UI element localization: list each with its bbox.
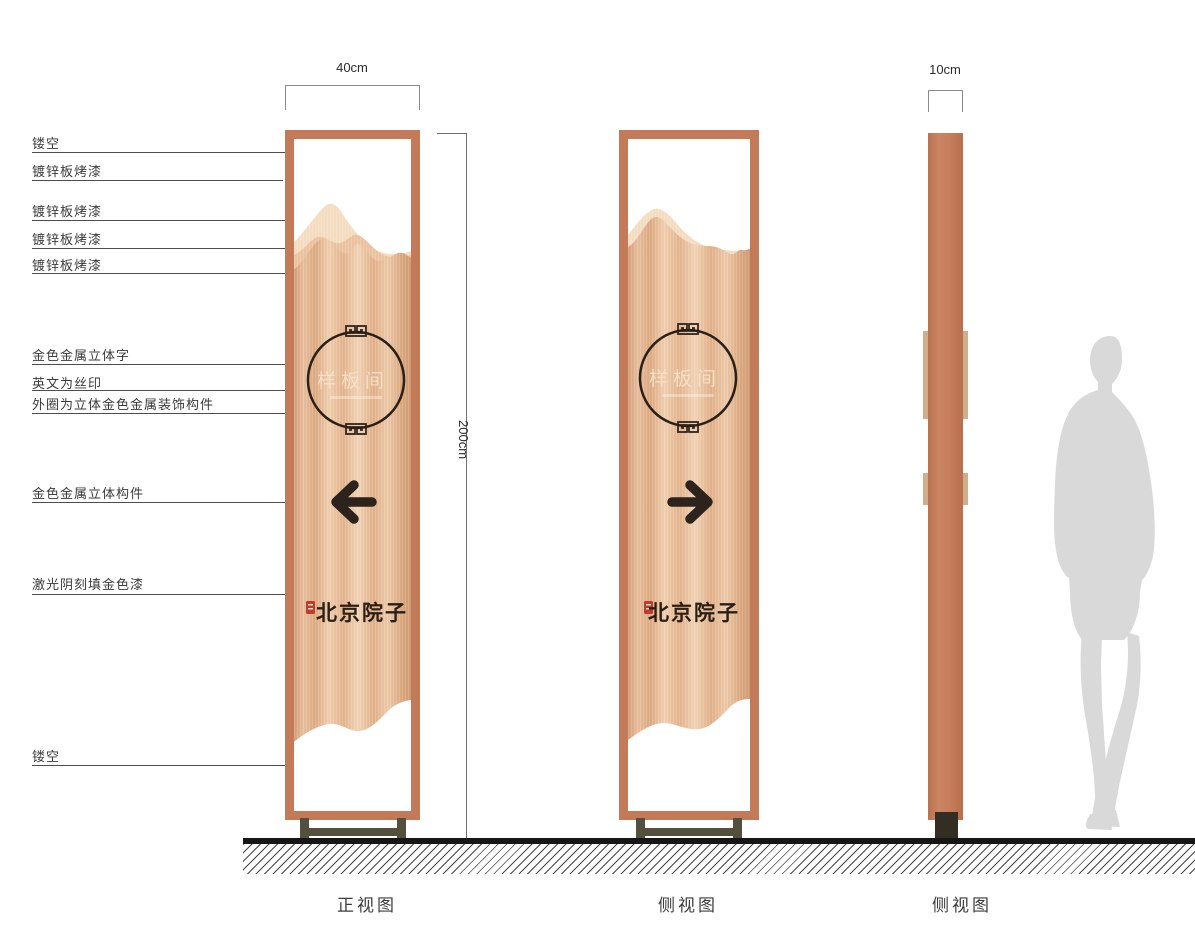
brushed-texture-overlay (294, 204, 411, 742)
dim-label-side-width: 10cm (895, 62, 995, 77)
caption-side-view-1: 侧视图 (633, 891, 743, 916)
profile-view-sign (928, 133, 963, 820)
side-view-artwork: 样板间 北京院子 (628, 139, 750, 811)
brand-calligraphy: 北京院子 (644, 600, 740, 625)
brand-text: 北京院子 (648, 600, 740, 625)
front-view-artwork: 样板间 北京院子 (294, 139, 411, 811)
base-bar (636, 828, 742, 836)
callout-label-gold-letters: 金色金属立体字 (32, 345, 130, 364)
callout-label-gold-component: 金色金属立体构件 (32, 483, 144, 502)
callout-leader-line (32, 502, 328, 503)
human-scale-silhouette (1032, 334, 1172, 836)
front-view-panel: 样板间 北京院子 (294, 139, 411, 811)
brushed-texture-overlay (628, 209, 750, 740)
dim-label-front-width: 40cm (302, 60, 402, 75)
dim-bracket-side-width (928, 90, 963, 112)
side-view-sign: 样板间 北京院子 (619, 130, 759, 820)
callout-label-hollow-bottom: 镂空 (32, 746, 60, 765)
side-view-panel: 样板间 北京院子 (628, 139, 750, 811)
signage-elevation-drawing: 镂空 镀锌板烤漆 镀锌板烤漆 镀锌板烤漆 镀锌板烤漆 金色金属立体字 英文为丝印… (0, 0, 1195, 927)
callout-label-hollow-top: 镂空 (32, 133, 60, 152)
callout-label-galvanized-4: 镀锌板烤漆 (32, 255, 102, 274)
callout-label-galvanized-1: 镀锌板烤漆 (32, 161, 102, 180)
callout-label-galvanized-2: 镀锌板烤漆 (32, 201, 102, 220)
dim-line-height (466, 133, 467, 839)
base-bar (300, 828, 406, 836)
callout-label-laser-engraving: 激光阴刻填金色漆 (32, 574, 144, 593)
dim-bracket-front-width (285, 85, 420, 110)
caption-side-view-2: 侧视图 (907, 891, 1017, 916)
silkscreen-english-strip (330, 396, 382, 399)
brand-calligraphy: 北京院子 (306, 600, 408, 625)
callout-leader-line (32, 152, 305, 153)
dim-label-height: 200cm (456, 420, 471, 459)
silkscreen-english-strip (662, 394, 714, 397)
callout-leader-line (32, 765, 302, 766)
emblem-text: 样板间 (317, 370, 389, 392)
callout-leader-line (32, 594, 291, 595)
dim-tick-height (437, 133, 467, 134)
callout-label-galvanized-3: 镀锌板烤漆 (32, 229, 102, 248)
profile-base-block (935, 812, 958, 839)
callout-leader-line (32, 273, 292, 274)
red-seal-icon (306, 601, 315, 614)
callout-label-outer-ring: 外圈为立体金色金属装饰构件 (32, 394, 214, 413)
callout-leader-line (32, 413, 315, 414)
emblem-text: 样板间 (649, 368, 721, 390)
callout-leader-line (32, 248, 292, 249)
brand-text: 北京院子 (316, 600, 408, 625)
front-view-sign: 样板间 北京院子 (285, 130, 420, 820)
callout-leader-line (32, 180, 283, 181)
caption-front-view: 正视图 (312, 891, 422, 916)
ground-hatch (243, 844, 1195, 874)
callout-leader-line (32, 220, 323, 221)
